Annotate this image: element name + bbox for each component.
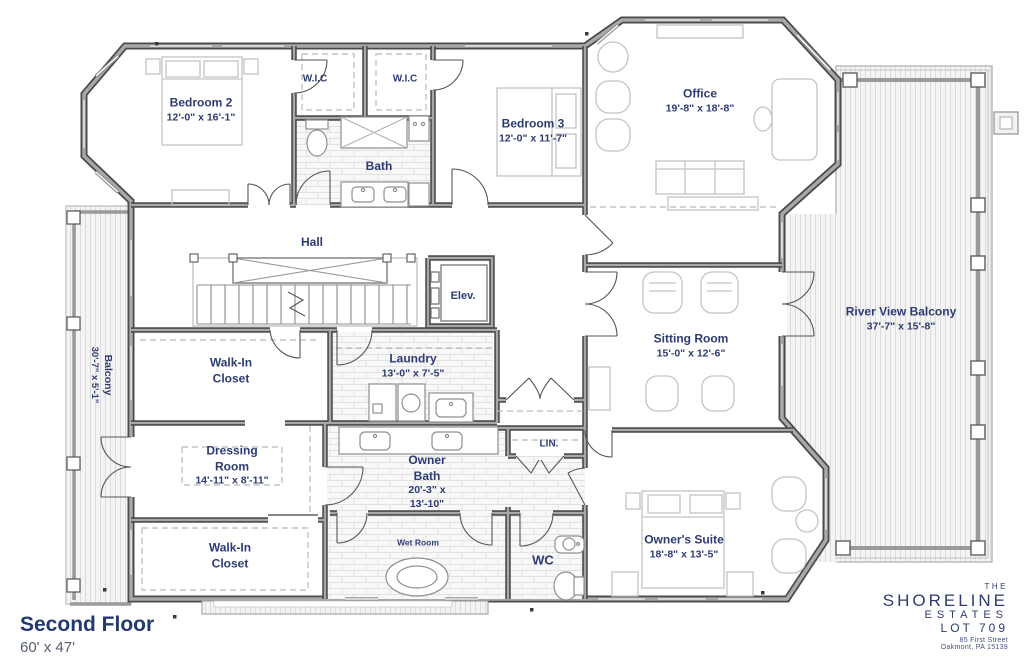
room-label-elevator: Elev.: [451, 289, 476, 303]
room-label-wc: WC: [532, 553, 554, 570]
room-label-hall: Hall: [301, 235, 323, 251]
left-balcony-deck: [66, 206, 131, 604]
room-label-laundry: Laundry 13'-0" x 7'-5": [382, 351, 445, 380]
room-label-office: Office 19'-8" x 18'-8": [666, 86, 735, 115]
entry-stoop: [202, 601, 488, 614]
room-label-walk-in-closet-lower: Walk-In Closet: [197, 540, 263, 571]
room-label-bedroom3: Bedroom 3 12'-0" x 11'-7": [499, 116, 567, 145]
room-label-dressing-room: Dressing Room 14'-11" x 8'-11": [194, 444, 270, 489]
title-block: Second Floor 60' x 47': [20, 613, 154, 656]
room-label-wic-left: W.I.C: [303, 73, 327, 86]
room-label-wic-right: W.I.C: [393, 73, 417, 86]
room-label-sitting-room: Sitting Room 15'-0" x 12'-6": [654, 331, 729, 360]
floor-title: Second Floor: [20, 613, 154, 636]
room-label-owners-suite: Owner's Suite 18'-8" x 13'-5": [644, 532, 724, 561]
room-label-owner-bath: Owner Bath 20'-3" x 13'-10": [400, 453, 454, 511]
brand-lot: LOT 709: [883, 622, 1008, 635]
brand-name: SHORELINE: [883, 592, 1008, 610]
overall-dimensions: 60' x 47': [20, 639, 154, 656]
room-label-wet-room: Wet Room: [397, 537, 439, 548]
room-label-balcony-left: Balcony 30'-7" x 5'-1": [88, 347, 114, 404]
room-label-river-view-balcony: River View Balcony 37'-7" x 15'-8": [846, 304, 957, 333]
room-label-bedroom2: Bedroom 2 12'-0" x 16'-1": [167, 95, 236, 124]
room-label-walk-in-closet-upper: Walk-In Closet: [198, 355, 264, 386]
branding-block: THE SHORELINE ESTATES LOT 709 85 First S…: [883, 583, 1008, 652]
room-label-bath: Bath: [366, 159, 393, 175]
room-label-linen: LIN.: [540, 438, 559, 451]
brand-address-city: Oakmont, PA 15139: [883, 644, 1008, 652]
floor-plan-page: Bedroom 2 12'-0" x 16'-1" W.I.C W.I.C Ba…: [0, 0, 1024, 665]
brand-address-street: 85 First Street: [883, 637, 1008, 645]
